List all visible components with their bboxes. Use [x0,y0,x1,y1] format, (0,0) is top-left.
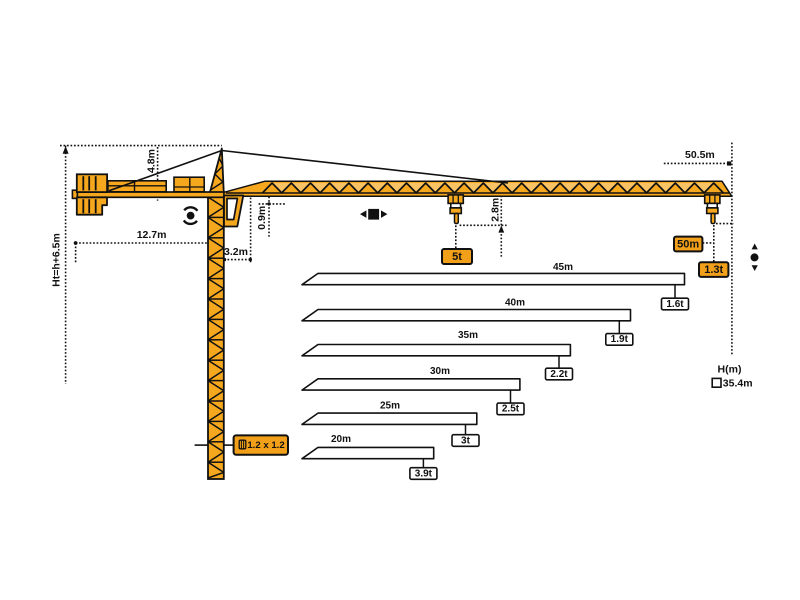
svg-text:45m: 45m [553,262,573,273]
svg-text:4.8m: 4.8m [145,149,157,173]
svg-text:H(m): H(m) [718,364,742,376]
svg-text:50.5m: 50.5m [685,149,715,161]
svg-text:30m: 30m [430,366,450,377]
svg-text:35m: 35m [458,330,478,341]
svg-text:1.2 x 1.2: 1.2 x 1.2 [247,440,284,451]
svg-text:3.2m: 3.2m [224,246,248,258]
svg-text:Ht=h+6.5m: Ht=h+6.5m [51,233,63,287]
svg-text:1.6t: 1.6t [666,299,684,310]
svg-text:2.8m: 2.8m [490,198,502,222]
svg-text:5t: 5t [452,251,462,263]
svg-text:40m: 40m [505,297,525,308]
svg-text:3t: 3t [461,435,471,446]
svg-text:25m: 25m [380,401,400,412]
svg-text:20m: 20m [331,434,351,445]
svg-text:2.5t: 2.5t [502,404,520,415]
svg-text:1.3t: 1.3t [704,264,723,276]
svg-text:50m: 50m [677,238,699,250]
svg-text:2.2t: 2.2t [550,369,568,380]
svg-text:3.9t: 3.9t [415,468,433,479]
svg-text:35.4m: 35.4m [723,377,753,389]
svg-text:12.7m: 12.7m [137,229,167,241]
svg-text:1.9t: 1.9t [611,334,629,345]
svg-text:0.9m: 0.9m [256,206,268,230]
